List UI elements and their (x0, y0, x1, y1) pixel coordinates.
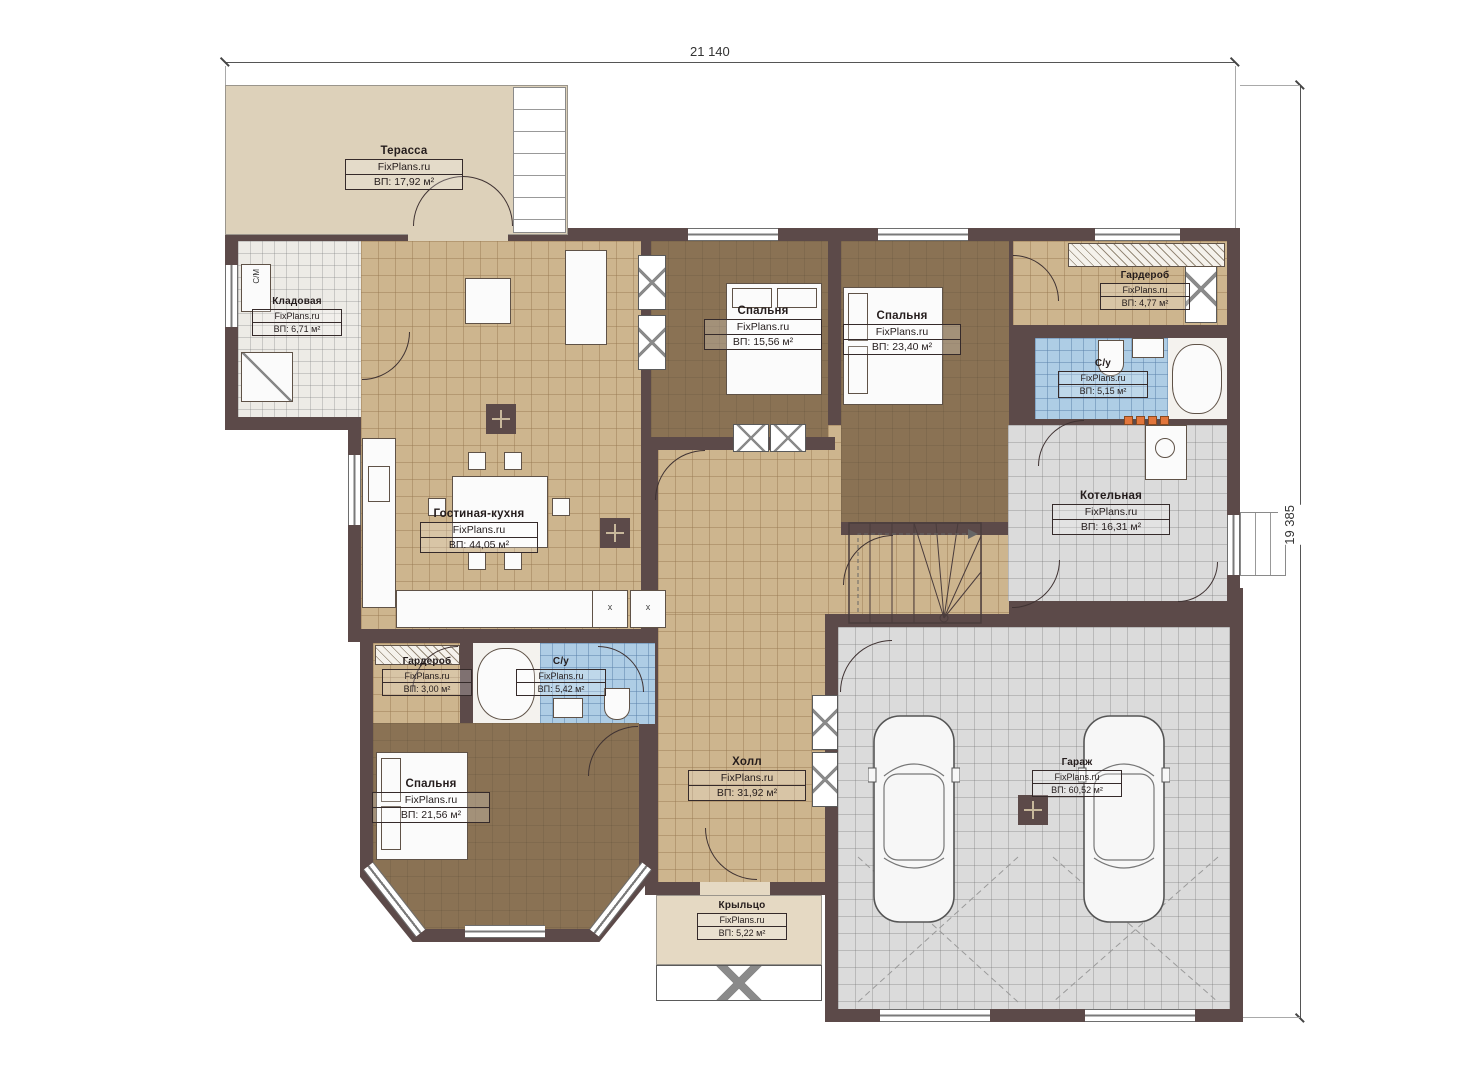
room-name: Гардероб (382, 656, 472, 667)
column-symbol (486, 404, 516, 434)
room-name: Гараж (1032, 757, 1122, 768)
kitchen-counter-symbol (362, 438, 396, 608)
bathtub-symbol (1172, 344, 1222, 414)
watermark: FixPlans.ru (843, 324, 961, 340)
room-name: Терасса (345, 145, 463, 157)
room-name: С/у (516, 656, 606, 667)
room-stamp-bathroom1: С/у FixPlans.ru ВП: 5,15 м² (1058, 358, 1148, 398)
vent-shaft-symbol (638, 315, 666, 370)
dimension-label-top: 21 140 (686, 44, 734, 59)
room-area: ВП: 6,71 м² (252, 323, 342, 336)
washing-machine-label: С/М (252, 269, 261, 284)
room-area: ВП: 5,15 м² (1058, 385, 1148, 398)
room-stamp-bedroom3: Спальня FixPlans.ru ВП: 21,56 м² (372, 778, 490, 823)
room-name: С/у (1058, 358, 1148, 369)
room-area: ВП: 23,40 м² (843, 340, 961, 355)
car-symbol (868, 712, 960, 926)
room-name: Кладовая (252, 296, 342, 307)
room-name: Спальня (704, 305, 822, 317)
room-stamp-wardrobe1: Гардероб FixPlans.ru ВП: 4,77 м² (1100, 270, 1190, 310)
appliance-mark: x (592, 602, 628, 612)
entrance-opening (700, 882, 770, 895)
room-stamp-garage: Гараж FixPlans.ru ВП: 60,52 м² (1032, 757, 1122, 797)
extension-line (1240, 85, 1300, 86)
window-symbol (688, 228, 778, 241)
sink-symbol (1132, 338, 1164, 358)
column-symbol (600, 518, 630, 548)
room-stamp-terrace: Терасса FixPlans.ru ВП: 17,92 м² (345, 145, 463, 190)
room-stamp-porch: Крыльцо FixPlans.ru ВП: 5,22 м² (697, 900, 787, 940)
room-stamp-storage: Кладовая FixPlans.ru ВП: 6,71 м² (252, 296, 342, 336)
room-stamp-hall: Холл FixPlans.ru ВП: 31,92 м² (688, 756, 806, 801)
status-dot (1136, 416, 1145, 425)
room-name: Котельная (1052, 490, 1170, 502)
extension-line (225, 66, 226, 85)
dimension-label-right: 19 385 (1278, 505, 1301, 545)
vent-shaft-symbol (733, 424, 769, 452)
closet-rail-symbol (1068, 243, 1225, 267)
watermark: FixPlans.ru (1058, 371, 1148, 385)
room-area: ВП: 60,52 м² (1032, 784, 1122, 797)
window-symbol (348, 455, 361, 525)
watermark: FixPlans.ru (688, 770, 806, 786)
room-area: ВП: 4,77 м² (1100, 297, 1190, 310)
status-dot (1148, 416, 1157, 425)
chair-symbol (504, 552, 522, 570)
vent-shaft-symbol (770, 424, 806, 452)
room-name: Крыльцо (697, 900, 787, 911)
window-symbol (878, 228, 968, 241)
extension-line (1235, 66, 1236, 228)
porch-steps-symbol (656, 965, 822, 1001)
extension-line (1243, 1017, 1300, 1018)
cabinet-symbol (565, 250, 607, 345)
watermark: FixPlans.ru (1052, 504, 1170, 520)
room-area: ВП: 16,31 м² (1052, 520, 1170, 535)
chair-symbol (468, 452, 486, 470)
room-stamp-boiler: Котельная FixPlans.ru ВП: 16,31 м² (1052, 490, 1170, 535)
column-symbol (1018, 795, 1048, 825)
toilet-symbol (604, 688, 630, 720)
room-area: ВП: 21,56 м² (372, 808, 490, 823)
room-name: Гардероб (1100, 270, 1190, 281)
room-area: ВП: 15,56 м² (704, 335, 822, 350)
room-name: Гостиная-кухня (420, 508, 538, 520)
kitchen-counter-symbol (396, 590, 596, 628)
room-name: Спальня (372, 778, 490, 790)
kitchen-sink-symbol (368, 466, 390, 502)
window-symbol (1095, 228, 1180, 241)
room-stamp-bathroom2: С/у FixPlans.ru ВП: 5,42 м² (516, 656, 606, 696)
status-dot (1124, 416, 1133, 425)
room-area: ВП: 5,22 м² (697, 927, 787, 940)
pergola-symbol (513, 87, 566, 233)
room-area: ВП: 17,92 м² (345, 175, 463, 190)
room-area: ВП: 5,42 м² (516, 683, 606, 696)
room-stamp-living-kitchen: Гостиная-кухня FixPlans.ru ВП: 44,05 м² (420, 508, 538, 553)
room-name: Спальня (843, 310, 961, 322)
room-area: ВП: 31,92 м² (688, 786, 806, 801)
sink-symbol (553, 698, 583, 718)
room-stamp-bedroom1: Спальня FixPlans.ru ВП: 15,56 м² (704, 305, 822, 350)
shower-symbol (241, 352, 293, 402)
watermark: FixPlans.ru (420, 522, 538, 538)
watermark: FixPlans.ru (1100, 283, 1190, 297)
watermark: FixPlans.ru (382, 669, 472, 683)
chair-symbol (468, 552, 486, 570)
garage-door-opening (1085, 1009, 1195, 1022)
floor-plan: 21 140 19 385 (0, 0, 1473, 1080)
terrace-door-opening (408, 228, 508, 241)
watermark: FixPlans.ru (704, 319, 822, 335)
status-dot (1160, 416, 1169, 425)
watermark: FixPlans.ru (252, 309, 342, 323)
vent-shaft-symbol (812, 695, 838, 750)
watermark: FixPlans.ru (516, 669, 606, 683)
watermark: FixPlans.ru (1032, 770, 1122, 784)
watermark: FixPlans.ru (345, 159, 463, 175)
room-area: ВП: 3,00 м² (382, 683, 472, 696)
vent-shaft-symbol (638, 255, 666, 310)
chair-symbol (552, 498, 570, 516)
rug-symbol (465, 278, 511, 324)
room-area: ВП: 44,05 м² (420, 538, 538, 553)
window-symbol (465, 925, 545, 938)
room-stamp-wardrobe2: Гардероб FixPlans.ru ВП: 3,00 м² (382, 656, 472, 696)
garage-door-opening (880, 1009, 990, 1022)
watermark: FixPlans.ru (697, 913, 787, 927)
room-stamp-bedroom2: Спальня FixPlans.ru ВП: 23,40 м² (843, 310, 961, 355)
window-symbol (1227, 515, 1240, 575)
watermark: FixPlans.ru (372, 792, 490, 808)
chair-symbol (504, 452, 522, 470)
boiler-burner-symbol (1155, 438, 1175, 458)
dimension-line-top (225, 62, 1235, 63)
appliance-mark: x (630, 602, 666, 612)
window-symbol (225, 265, 238, 327)
vent-shaft-symbol (812, 752, 838, 807)
dimension-line-right (1300, 85, 1301, 1018)
room-name: Холл (688, 756, 806, 768)
car-symbol (1078, 712, 1170, 926)
